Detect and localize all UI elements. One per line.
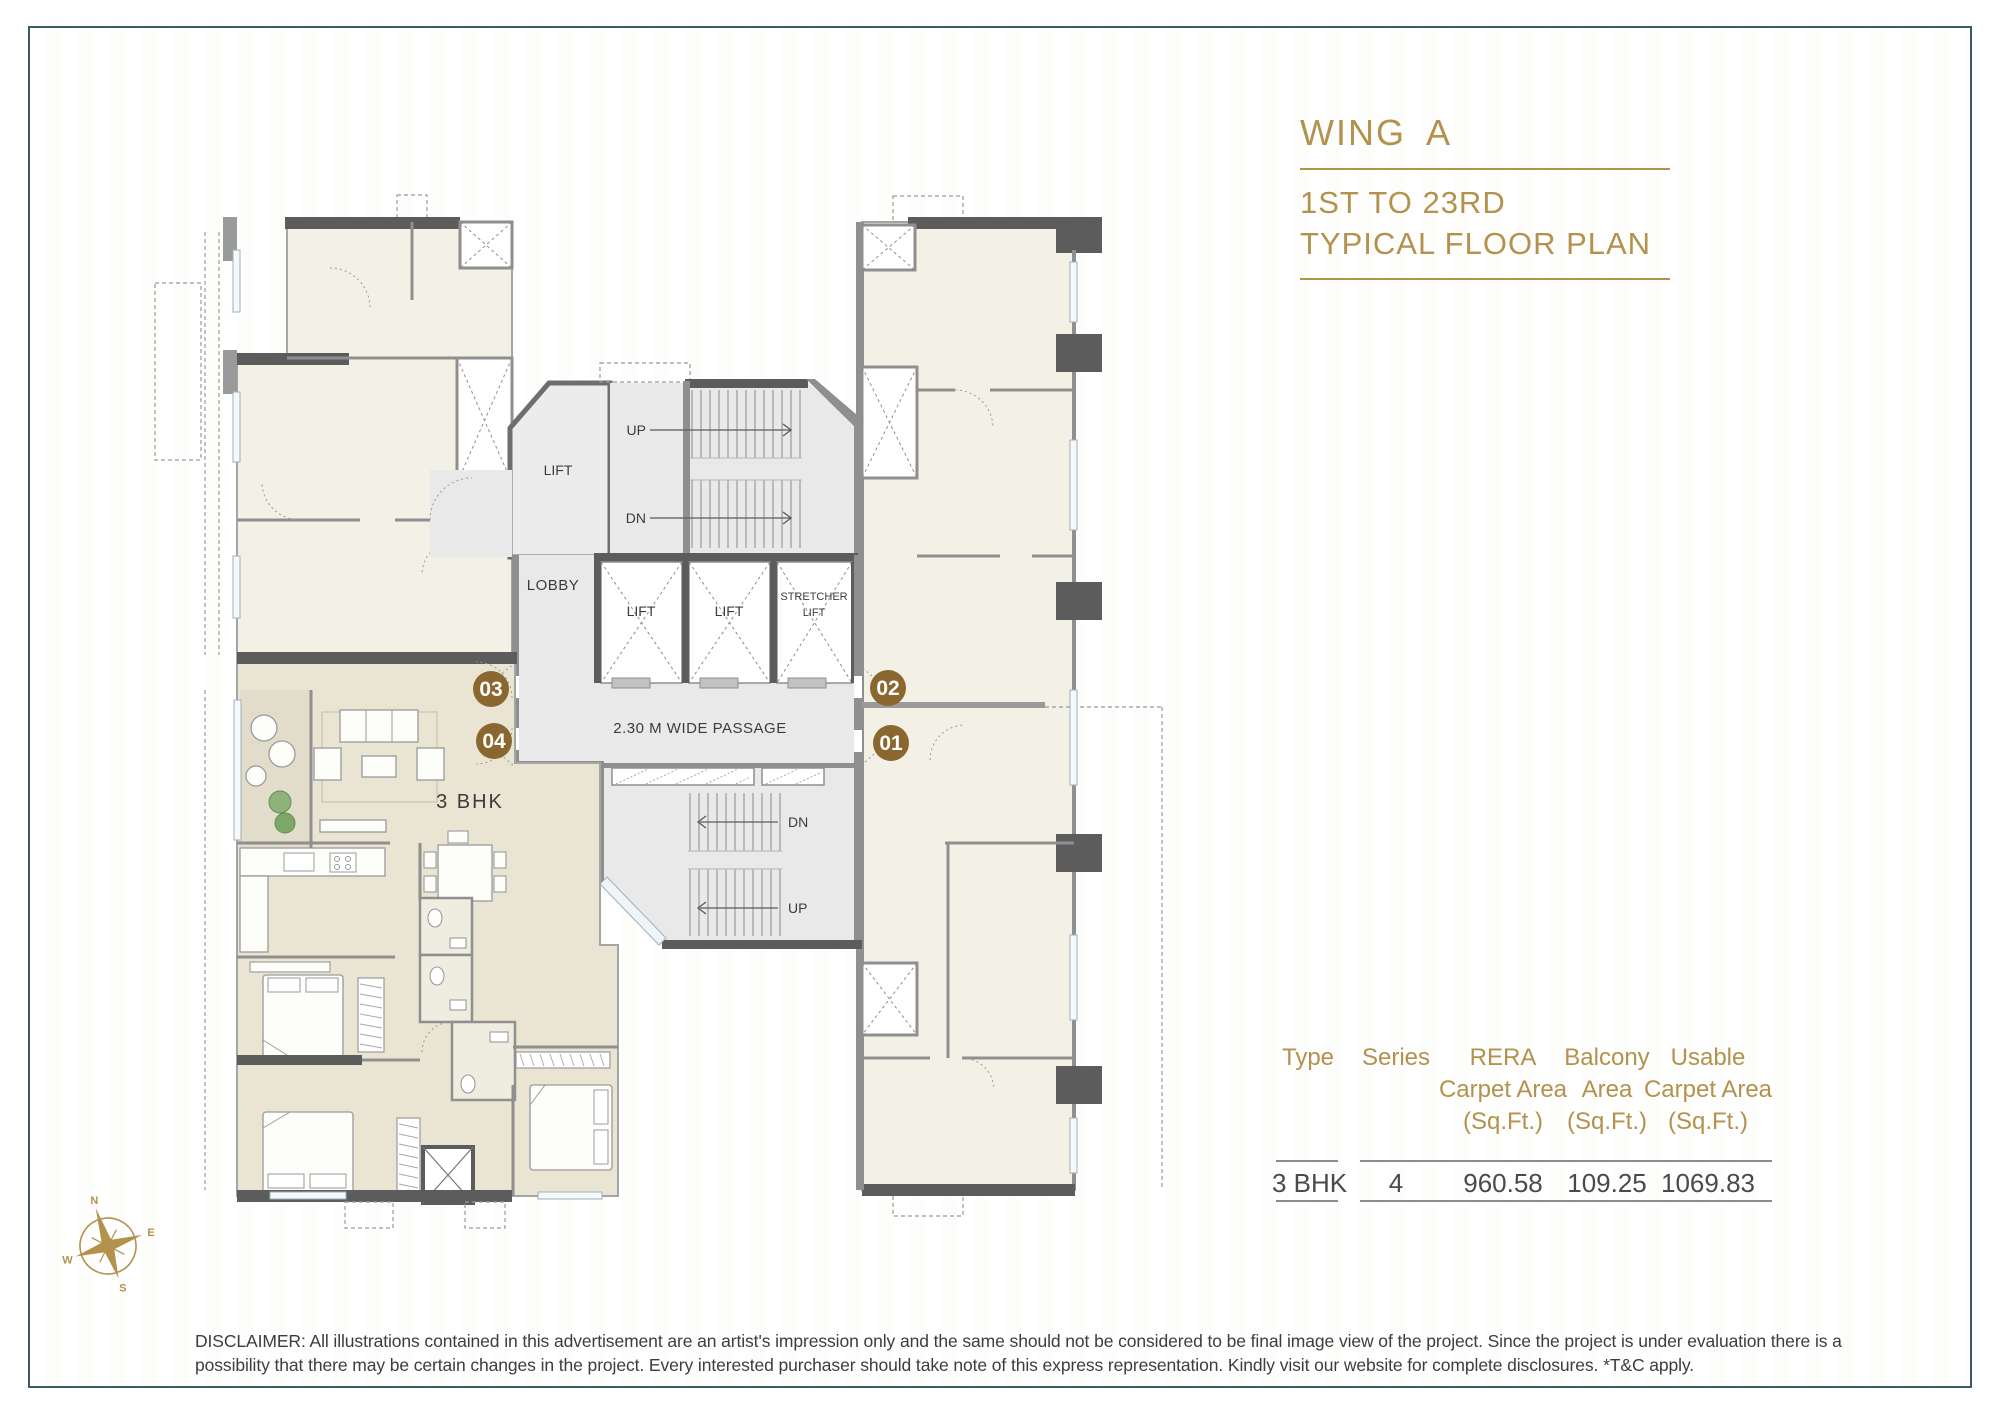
duct-shaft-rw-top <box>862 225 915 270</box>
table-rule-type-top <box>1276 1160 1338 1162</box>
table-rule-main-bottom <box>1360 1200 1772 1202</box>
stair-up-bottom-label: UP <box>788 900 807 916</box>
unit-marker-02: 02 <box>870 670 906 706</box>
stair-dn-bottom-label: DN <box>788 814 808 830</box>
left-wing <box>155 195 512 660</box>
balcony <box>234 690 311 848</box>
stretcher-lift-label-1: STRETCHER <box>780 591 847 603</box>
lobby-label: LOBBY <box>527 577 580 594</box>
wardrobe-bottom-right <box>516 1052 610 1068</box>
unit-marker-04: 04 <box>476 723 512 759</box>
wardrobe-master <box>358 978 384 1052</box>
passage-label: 2.30 M WIDE PASSAGE <box>613 720 786 737</box>
duct-shaft-rw-bottom <box>862 963 917 1035</box>
svg-text:03: 03 <box>479 678 502 701</box>
unit-marker-03: 03 <box>473 671 509 707</box>
col-header-usable: Usable Carpet Area (Sq.Ft.) <box>1643 1042 1773 1138</box>
table-rule-main-top <box>1360 1160 1772 1162</box>
right-wing <box>856 196 1162 1216</box>
compass-east-label: E <box>147 1227 154 1239</box>
lift-shaft-2: LIFT <box>689 562 770 683</box>
duct-shaft-top <box>460 222 512 268</box>
lift-shaft-1: LIFT <box>601 562 682 683</box>
lift-2-label: LIFT <box>715 603 744 619</box>
duct-shaft-rw-mid <box>862 367 917 478</box>
unit-type-label: 3 BHK <box>436 791 504 813</box>
compass-rose: N E S W <box>44 1179 172 1311</box>
unit-marker-01: 01 <box>873 725 909 761</box>
stair-up-top-label: UP <box>627 422 646 438</box>
wardrobe-bottom-left <box>397 1118 420 1196</box>
col-header-type: Type <box>1272 1042 1344 1074</box>
svg-text:01: 01 <box>879 732 903 755</box>
stair-dn-top-label: DN <box>626 510 646 526</box>
svg-text:02: 02 <box>876 677 899 700</box>
table-rule-type-bottom <box>1276 1200 1338 1202</box>
cell-type: 3 BHK <box>1272 1168 1344 1199</box>
bedroom-bottom-left <box>263 1112 420 1196</box>
lift-room-label: LIFT <box>544 462 573 478</box>
col-header-series: Series <box>1356 1042 1436 1074</box>
stretcher-lift-shaft: STRETCHER LIFT <box>777 562 852 683</box>
compass-south-label: S <box>119 1283 126 1295</box>
cell-series: 4 <box>1356 1168 1436 1199</box>
stretcher-lift-label-2: LIFT <box>803 607 826 619</box>
svg-text:04: 04 <box>482 730 506 753</box>
duct-shaft-mid <box>457 358 512 483</box>
cell-usable: 1069.83 <box>1643 1168 1773 1199</box>
disclaimer-text: DISCLAIMER: All illustrations contained … <box>195 1330 1843 1377</box>
lift-bank: LIFT LIFT STRETCHER LIFT <box>594 553 858 688</box>
compass-north-label: N <box>90 1195 98 1207</box>
compass-west-label: W <box>62 1254 73 1266</box>
lift-1-label: LIFT <box>627 603 656 619</box>
